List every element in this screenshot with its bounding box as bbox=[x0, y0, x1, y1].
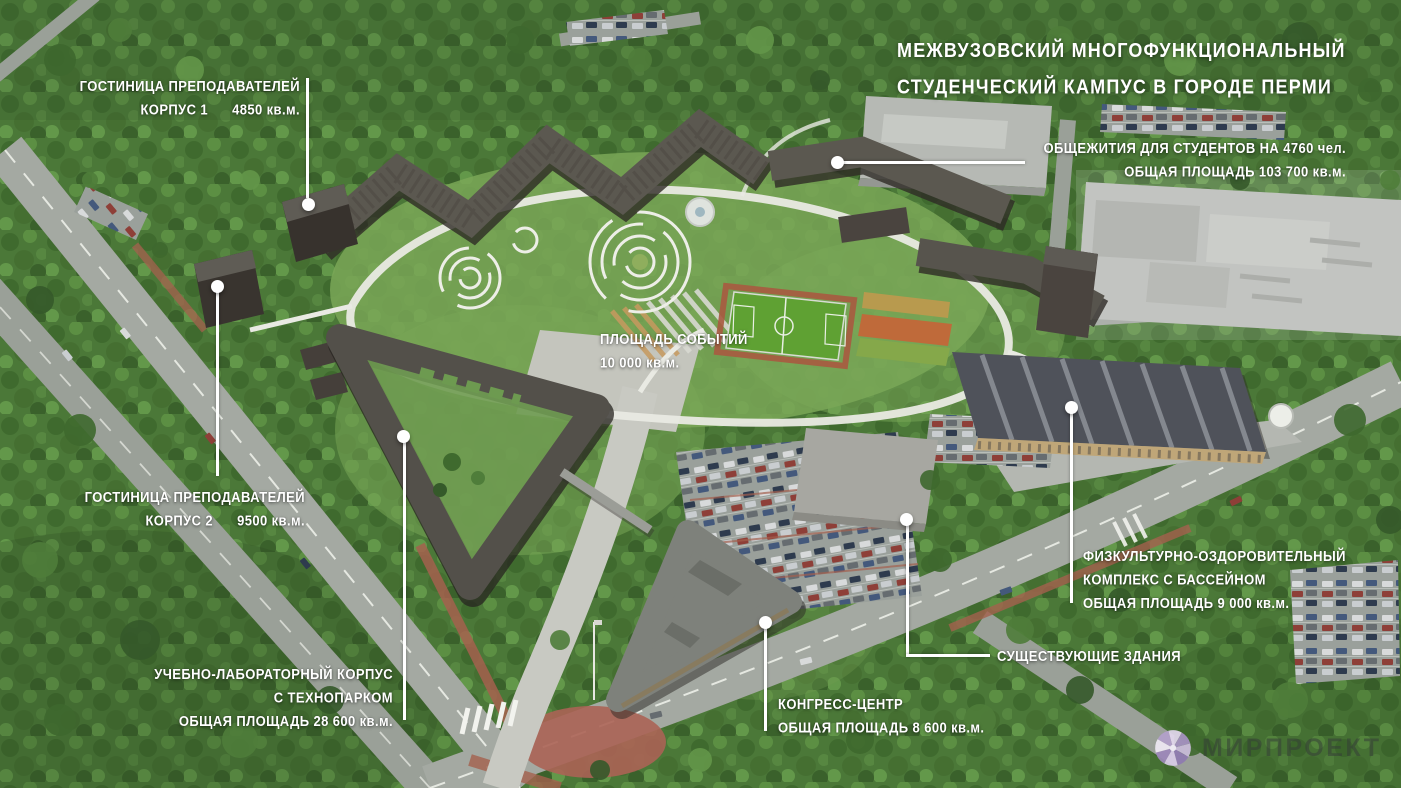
leader-line-lab-building bbox=[403, 436, 406, 720]
leader-line-existing-h bbox=[906, 654, 990, 657]
annotation-hotel-corpus1: ГОСТИНИЦА ПРЕПОДАВАТЕЛЕЙ КОРПУС 1 4850 к… bbox=[80, 74, 300, 121]
annotation-line: ОБЩАЯ ПЛОЩАДЬ 9 000 кв.м. bbox=[1083, 591, 1346, 615]
annotation-hotel-corpus2: ГОСТИНИЦА ПРЕПОДАВАТЕЛЕЙ КОРПУС 2 9500 к… bbox=[85, 485, 305, 532]
leader-dot-dormitories bbox=[831, 156, 844, 169]
annotation-congress-center: КОНГРЕСС-ЦЕНТР ОБЩАЯ ПЛОЩАДЬ 8 600 кв.м. bbox=[778, 692, 984, 739]
annotation-line: КОМПЛЕКС С БАССЕЙНОМ bbox=[1083, 568, 1346, 592]
leader-dot-hotel-corpus2 bbox=[211, 280, 224, 293]
campus-masterplan: МЕЖВУЗОВСКИЙ МНОГОФУНКЦИОНАЛЬНЫЙ СТУДЕНЧ… bbox=[0, 0, 1401, 788]
annotation-line: ОБЩАЯ ПЛОЩАДЬ 103 700 кв.м. bbox=[1044, 160, 1347, 184]
page-title: МЕЖВУЗОВСКИЙ МНОГОФУНКЦИОНАЛЬНЫЙ СТУДЕНЧ… bbox=[897, 32, 1346, 105]
annotation-event-square: ПЛОЩАДЬ СОБЫТИЙ 10 000 кв.м. bbox=[600, 327, 748, 374]
title-line-2: СТУДЕНЧЕСКИЙ КАМПУС В ГОРОДЕ ПЕРМИ bbox=[897, 68, 1346, 104]
annotation-line: КОРПУС 2 9500 кв.м. bbox=[85, 509, 305, 533]
annotation-line: УЧЕБНО-ЛАБОРАТОРНЫЙ КОРПУС bbox=[154, 662, 393, 686]
leader-line-dormitories bbox=[838, 161, 1025, 164]
title-line-1: МЕЖВУЗОВСКИЙ МНОГОФУНКЦИОНАЛЬНЫЙ bbox=[897, 32, 1346, 68]
annotation-existing-buildings: СУЩЕСТВУЮЩИЕ ЗДАНИЯ bbox=[997, 644, 1181, 668]
leader-dot-existing bbox=[900, 513, 913, 526]
mirproekt-logo-icon bbox=[1152, 727, 1194, 769]
annotation-sports-complex: ФИЗКУЛЬТУРНО-ОЗДОРОВИТЕЛЬНЫЙ КОМПЛЕКС С … bbox=[1083, 544, 1346, 615]
annotation-line: КОНГРЕСС-ЦЕНТР bbox=[778, 692, 984, 716]
leader-line-congress bbox=[764, 622, 767, 731]
mirproekt-logo: МИРПРОЕКТ bbox=[1152, 726, 1382, 770]
annotation-line: ОБЩАЯ ПЛОЩАДЬ 28 600 кв.м. bbox=[154, 709, 393, 733]
leader-line-hotel-corpus1 bbox=[306, 78, 309, 198]
annotation-line: СУЩЕСТВУЮЩИЕ ЗДАНИЯ bbox=[997, 644, 1181, 668]
leader-line-existing-v bbox=[906, 519, 909, 656]
annotation-line: ФИЗКУЛЬТУРНО-ОЗДОРОВИТЕЛЬНЫЙ bbox=[1083, 544, 1346, 568]
leader-line-hotel-corpus2 bbox=[216, 286, 219, 476]
annotation-dormitories: ОБЩЕЖИТИЯ ДЛЯ СТУДЕНТОВ НА 4760 чел. ОБЩ… bbox=[1044, 136, 1347, 183]
annotation-line: 10 000 кв.м. bbox=[600, 351, 748, 375]
leader-dot-lab-building bbox=[397, 430, 410, 443]
annotation-line: ГОСТИНИЦА ПРЕПОДАВАТЕЛЕЙ bbox=[85, 485, 305, 509]
annotation-lab-building: УЧЕБНО-ЛАБОРАТОРНЫЙ КОРПУС С ТЕХНОПАРКОМ… bbox=[154, 662, 393, 733]
sports-complex-building bbox=[952, 352, 1270, 464]
annotation-line: КОРПУС 1 4850 кв.м. bbox=[80, 98, 300, 122]
leader-line-sports-complex bbox=[1070, 407, 1073, 603]
leader-dot-sports-complex bbox=[1065, 401, 1078, 414]
annotation-line: ОБЩЕЖИТИЯ ДЛЯ СТУДЕНТОВ НА 4760 чел. bbox=[1044, 136, 1347, 160]
leader-dot-congress bbox=[759, 616, 772, 629]
annotation-line: ПЛОЩАДЬ СОБЫТИЙ bbox=[600, 327, 748, 351]
leader-dot-hotel-corpus1 bbox=[302, 198, 315, 211]
annotation-line: ОБЩАЯ ПЛОЩАДЬ 8 600 кв.м. bbox=[778, 716, 984, 740]
mirproekt-logo-text: МИРПРОЕКТ bbox=[1202, 734, 1382, 763]
annotation-line: С ТЕХНОПАРКОМ bbox=[154, 686, 393, 710]
annotation-line: ГОСТИНИЦА ПРЕПОДАВАТЕЛЕЙ bbox=[80, 74, 300, 98]
